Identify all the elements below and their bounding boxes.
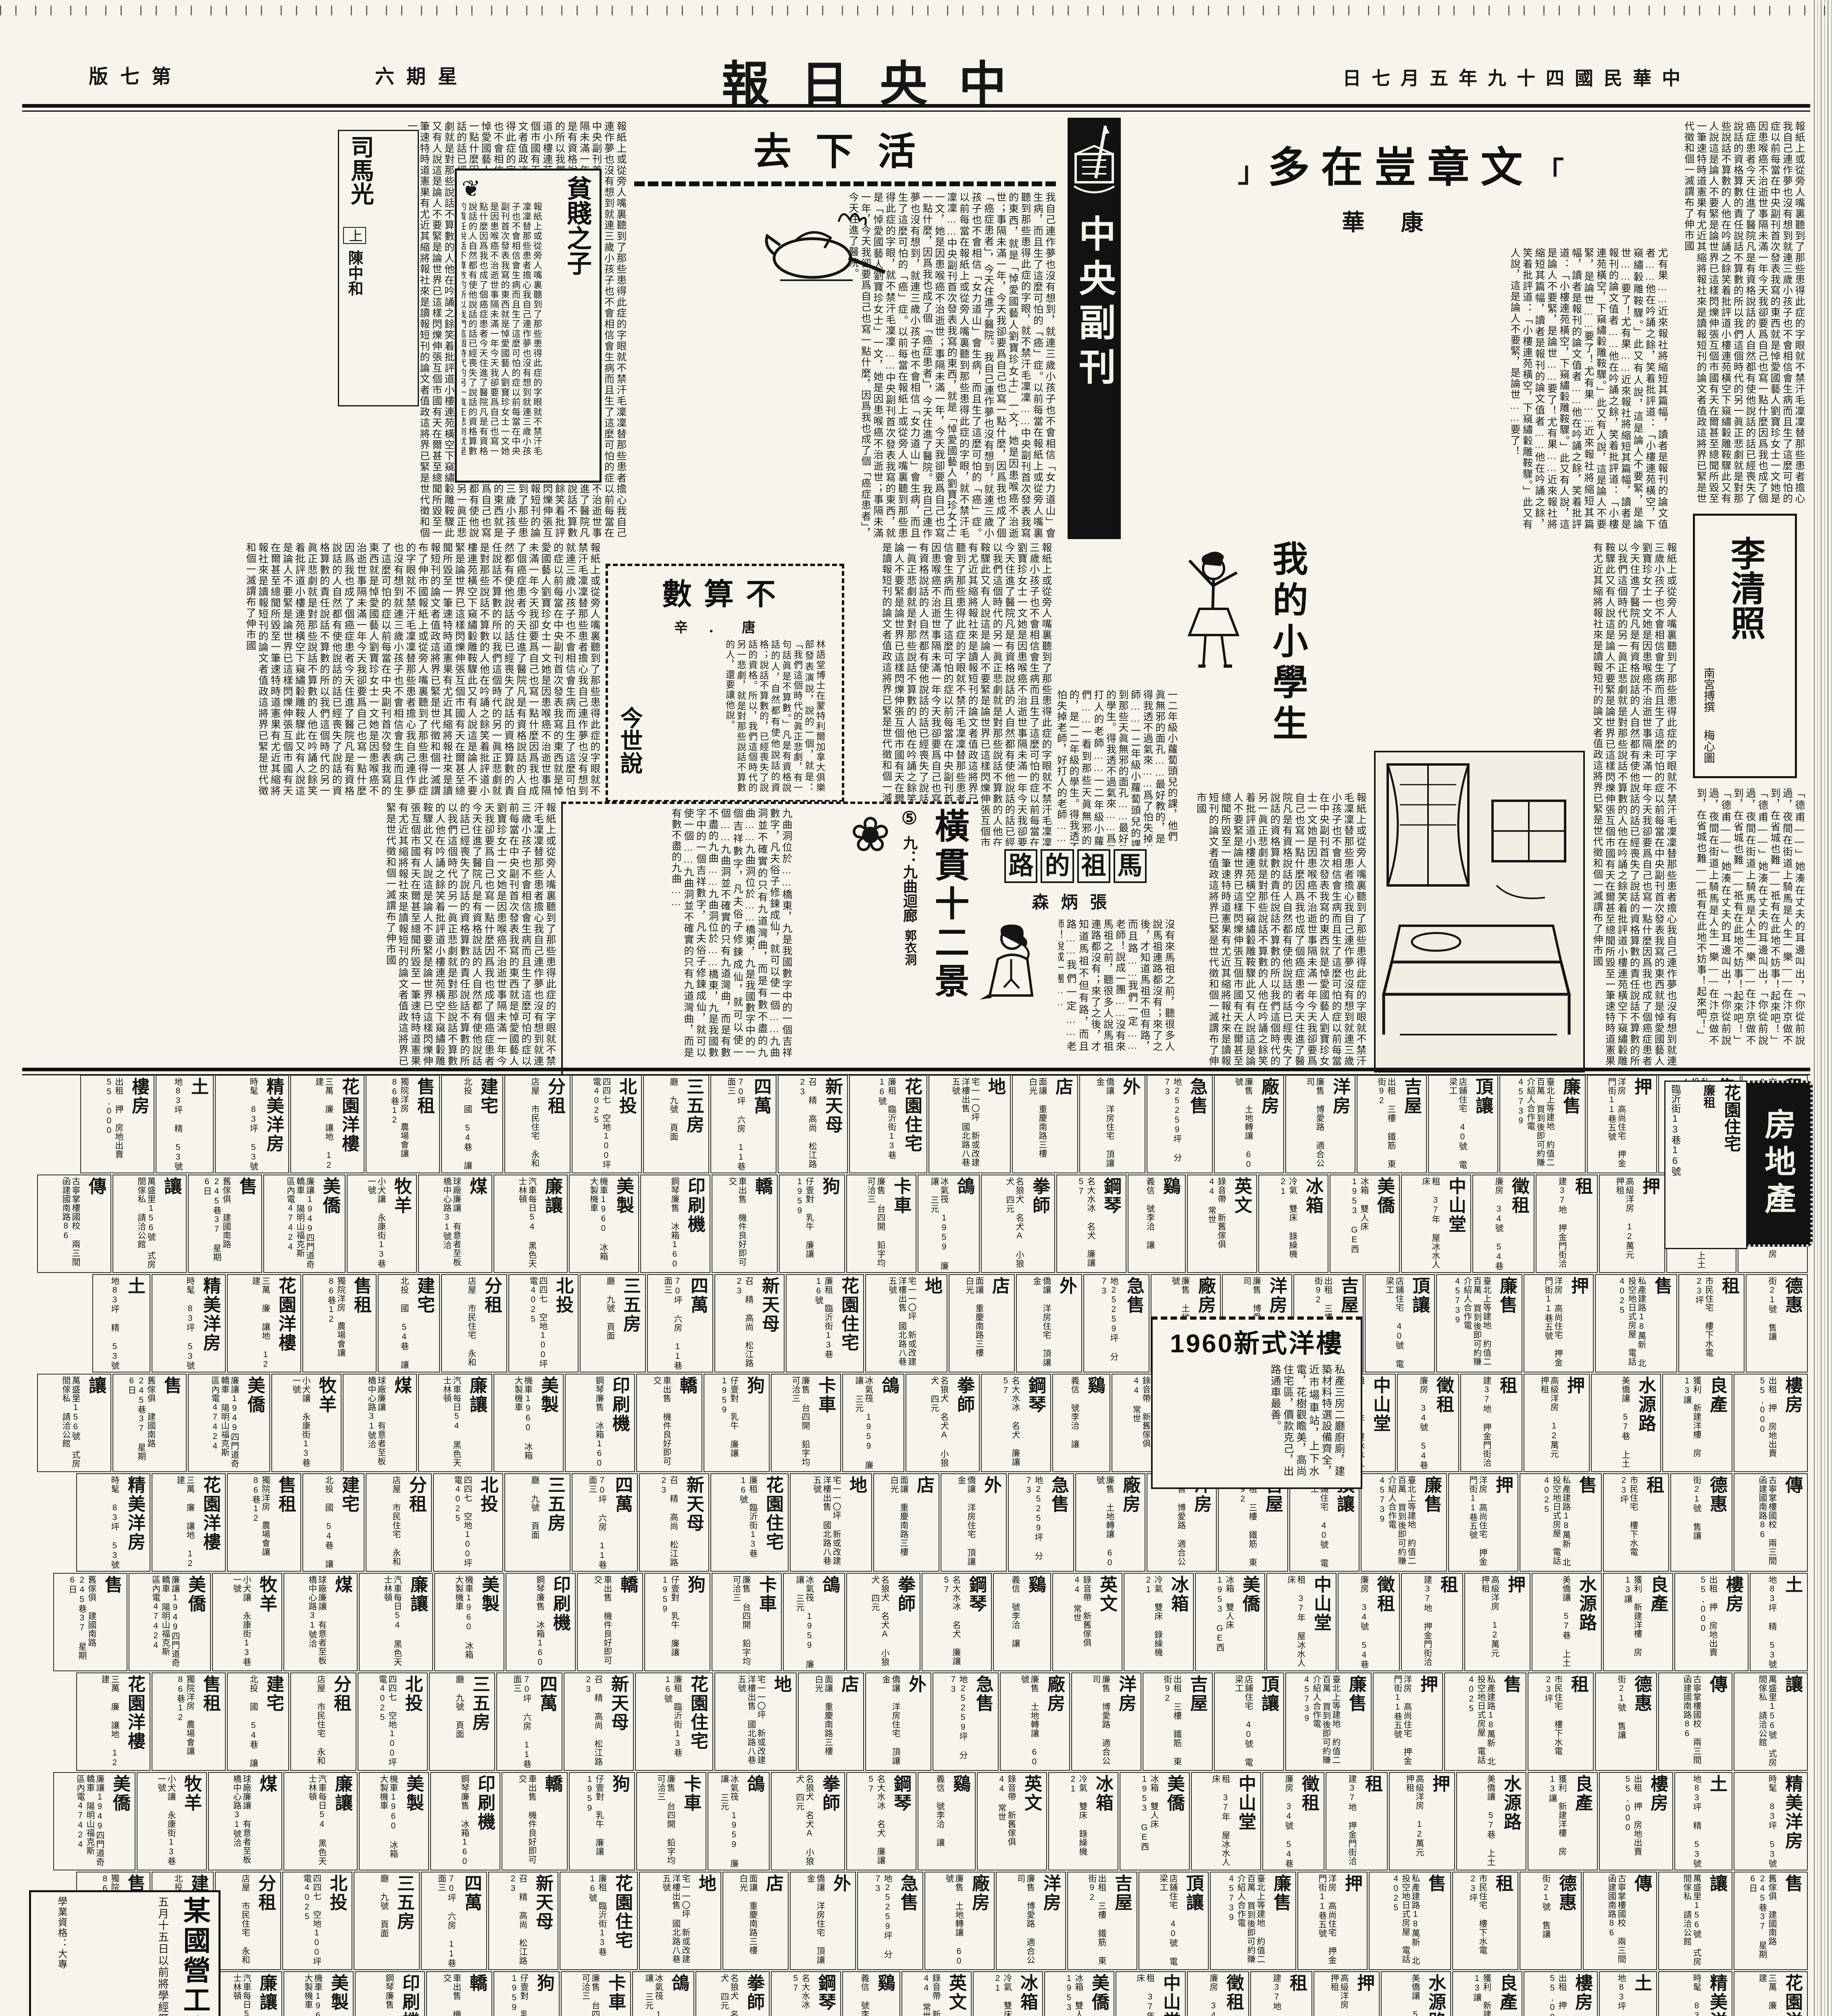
classified-ad-header: 美製 (400, 1774, 426, 1868)
classified-ad-body: 美僑讓 57巷 上土 (1486, 1774, 1495, 1868)
classified-ad-header: 印刷機 (396, 1974, 422, 2016)
classified-ad: 良產獲利 新建洋樓 房13讓 (1662, 1374, 1732, 1472)
classified-ad-body: 錄音帶 新舊傢俱 44 常世 (997, 1774, 1016, 1868)
classified-ad: 地宅一一〇坪 新或改建洋樓出售 國北路八巷五號 (928, 1075, 1011, 1173)
classified-ad: 花園住宅廉租 臨沂街13巷16號 (710, 1473, 789, 1572)
classified-ad: 租市民住宅 樓下水電 23坪 (1528, 1672, 1594, 1771)
liqingzhao-title: 李清照 (1720, 521, 1770, 654)
classified-ad: 廠房廉售 土地轉讓 60號 (924, 1872, 995, 1970)
classified-ad-body: 鋼琴廉售 冰箱160 (670, 1177, 679, 1270)
classified-ad-header: 鷄 (947, 1774, 973, 1868)
classified-ad-body: 機車1960 冰箱 大製機車 (513, 1376, 533, 1470)
classified-ad-header: 美僑 (182, 1575, 208, 1669)
classified-ad-body: 美僑讓 57巷 上土 (1561, 1575, 1571, 1669)
classified-ad-body: 名狼犬 名犬A 小狼犬 四元 (870, 1575, 889, 1669)
classified-ad: 頂讓店鋪住宅 40號 電梁工 (1428, 1075, 1498, 1173)
classified-ad: 外僑讓 洋房住宅 頂讓金 (865, 1672, 931, 1771)
classified-ad-header: 急售 (1045, 1476, 1071, 1569)
classified-ad: 押高級洋房 12萬元 押租 (1599, 1175, 1665, 1273)
classified-ad-body: 店鋪住宅 40號 電梁工 (1158, 1874, 1178, 1968)
classified-recruit-engineer: 某國營工廠招聘化工工程師 五月十五日以前將學經歷函告，合則函約面談。（卅八）新竹… (29, 1890, 221, 2016)
classified-ad: 煤球廠廉讓 有意者至板橋中心路31號洽 (343, 1374, 417, 1472)
classified-ad-body: 廉售 台四開 鉛字均可洽三 (731, 1575, 751, 1669)
classified-ad-header: 廠房 (1117, 1476, 1143, 1569)
classified-ad-body: 廳 九號 頁面 (605, 1277, 615, 1370)
classified-ad-header: 美僑 (241, 1376, 267, 1470)
classified-ad-header: 鴿 (666, 1974, 691, 2016)
classified-ad-header: 卡車 (602, 1974, 628, 2016)
classified-ad-header: 急售 (970, 1675, 996, 1768)
classified-ad: 傳古寧掌樓國校 兩三間函建國南路86 (1734, 1473, 1808, 1572)
classified-ad-header: 新天母 (605, 1675, 631, 1768)
classified-ad-header: 四萬 (534, 1675, 560, 1768)
classified-ad: 美僑冰箱 雙人床 1953 GE西 (1330, 1175, 1400, 1273)
classified-garden-villa: 花園住宅 廉租 臨沂街13巷16號 (1664, 1081, 1747, 1249)
liqingzhao-body: 「德甫——」她湊在丈夫的耳邊叫出，「你從前說過，夜間在街道上騎馬是人生一樂——在… (1684, 788, 1805, 1046)
classified-ad-header: 分租 (403, 1476, 429, 1569)
classified-1960-villa: 1960新式洋樓 私產三房二廳廚廁，建築材料特選設備齊全，近市場車站，上下水電，… (1151, 1316, 1362, 1489)
classified-ad: 印刷機鋼琴廉售 冰箱160 (355, 1971, 425, 2016)
classified-ad: 店面讓 重慶南路三樓 白光 (1012, 1075, 1078, 1173)
classified-ad: 售私產建路18萬新 北投空地日式房屋 電話4025 (1369, 1872, 1451, 1970)
classified-ad: 拳師名狼犬 名犬A 小狼犬 四元 (771, 1772, 845, 1870)
article-text-columns: 報紙上或從旁人嘴裏聽到了那些患得此症的字眼就不禁汗毛凜凜替那些患者擔心我自己連作… (1586, 542, 1677, 1066)
classified-ad: 廉售臺北上等建地 約值二百萬 買到後即可約賺 介紹人合作電45739 (1285, 1672, 1372, 1771)
busuanshu-column-label: 今世說 (614, 706, 646, 795)
classified-ad-body: 地83坪 精 53號 (1616, 1974, 1626, 2016)
classified-ad-header: 讓 (158, 1177, 184, 1270)
classified-ad-header: 鴿 (816, 1575, 842, 1669)
classified-ad-header: 讓 (83, 1376, 108, 1470)
classified-ad-header: 良產 (1569, 1774, 1595, 1868)
classified-ad-body: 古寧掌樓國校 兩三間函建國南路86 (1682, 1675, 1701, 1768)
classified-ad-body: 時髦 83坪 53號 (248, 1077, 258, 1171)
classified-ad: 新天母召 精 高尚 松江路23 (778, 1075, 848, 1173)
scan-ticks-top (0, 6, 1832, 15)
classified-ad-header: 轎 (464, 1974, 489, 2016)
classified-ad-body: 冰箱 雙人床 1953 GE西 (1215, 1575, 1234, 1669)
classified-ad-body: 四四七 空地100坪 電4025 (528, 1277, 548, 1370)
classified-ad-header: 三五房 (681, 1077, 706, 1171)
classified-ad-header: 地 (768, 1675, 794, 1768)
classified-ad-header: 樓房 (1569, 1974, 1595, 2016)
classified-ad-body: 三萬 廉 讓地 12建 (314, 1077, 333, 1171)
quote-open: 「 (1536, 156, 1564, 188)
classified-ad-body: 店鋪住宅 40號 電梁工 (1448, 1077, 1467, 1171)
classified-ad-body: 小犬讓 永康街13巷一號 (366, 1177, 386, 1270)
classified-ad-header: 店 (835, 1675, 861, 1768)
feature-pupils: 我的小學生 一二年級小蘿蔔頭兒的課，他們……一看到那些天眞無邪的面孔……最好教的… (1057, 540, 1313, 792)
classified-ad-header: 良產 (1645, 1575, 1670, 1669)
classified-ad-body: 冷氣 雙床 錄繰機 21 (1278, 1177, 1297, 1270)
classified-ad: 售租獨院洋房 農場會讓 86巷12 (366, 1075, 440, 1173)
classified-ad: 急售地25259坪 分73 (1147, 1075, 1213, 1173)
classified-ad-body: 高級洋房 12萬元 押租 (1615, 1177, 1634, 1270)
classified-ad: 分租店屋 市民住宅 永和 (215, 1872, 281, 1970)
classified-ad-header: 狗 (531, 1974, 557, 2016)
classified-ad-header: 四萬 (685, 1277, 710, 1370)
classified-ad: 轎車出售 機件良好即可交 (502, 1772, 568, 1870)
classified-ad: 轎車出售 機件良好即可交 (426, 1971, 492, 2016)
classified-ad-header: 頂讓 (1406, 1277, 1432, 1370)
classified-ad-header: 吉屋 (1259, 1476, 1285, 1569)
classified-ad-header: 吉屋 (1184, 1675, 1210, 1768)
classified-ad-body: 宅一一〇坪 新或改建洋樓出售 國北路八巷五號 (737, 1675, 766, 1768)
classified-ad-body: 市民住宅 樓下水電 23坪 (1468, 1874, 1487, 1968)
classified-ad-body: 冰氣筏 1959 廉讓 三元 (719, 1774, 739, 1868)
classified-ad-header: 廠房 (1255, 1077, 1281, 1171)
classified-ad-header: 外 (1053, 1277, 1079, 1370)
classified-ad: 德惠街21號 售讓 (1595, 1672, 1657, 1771)
classified-ad-header: 美製 (535, 1376, 561, 1470)
article-text-columns: 報紙上或從旁人嘴裏聽到了那些患得此症的字眼就不禁汗毛凜凜替那些患者擔心我自己連作… (1177, 792, 1367, 1066)
classified-ad: 樓房出租 押 房地出賣 55,000 (1599, 1772, 1673, 1870)
classified-ad: 鷄義信 號李洽 讓 (918, 1772, 976, 1870)
classified-ad: 鋼琴名大水冰 名犬 廉讓 57 (922, 1573, 992, 1671)
classified-ad: 建宅北投 國 54巷 讓 (441, 1075, 503, 1173)
classified-ad: 花園住宅廉租 臨沂街13巷16號 (786, 1274, 864, 1372)
classified-ad-header: 北投 (550, 1277, 576, 1370)
classified-ad-header: 德惠 (1553, 1874, 1579, 1968)
classified-ad-header: 美僑 (1161, 1774, 1187, 1868)
classified-ad-header: 建宅 (260, 1675, 286, 1768)
classified-ad-header: 租 (1569, 1177, 1595, 1270)
classified-ad: 北投四四七 空地100坪 電4025 (358, 1672, 428, 1771)
classified-ad: 美製機車1960 冰箱 大製機車 (569, 1175, 639, 1273)
classified-ad: 鷄義信 號李洽 讓 (993, 1573, 1051, 1671)
classified-ad-header: 美僑 (107, 1774, 133, 1868)
classified-ad-header: 地 (919, 1277, 945, 1370)
classified-ad: 土地83坪 精 53號 (1750, 1573, 1808, 1671)
classified-ad-header: 售 (158, 1376, 184, 1470)
classified-ad-header: 拳師 (892, 1575, 918, 1669)
title-char-box: 馬 (1114, 849, 1147, 883)
huoxiaqu-title: 去下活 (631, 121, 1062, 176)
classified-ad-body: 店屋 市民住宅 永和 (466, 1277, 476, 1370)
classified-ad-header: 洋房 (1188, 1476, 1214, 1569)
classified-ad-body: 私產建路18萬新 北投空地日式房屋 電話4025 (1391, 1874, 1420, 1968)
classified-ad-body: 洋房 高尚住宅 押金門街11巷五號 (1393, 1675, 1412, 1768)
classified-ad-body: 萬盛里156號 式房間傢私 請洽公館 (1682, 1874, 1701, 1968)
classified-ad: 廉售臺北上等建地 約值二百萬 買到後即可約賺 介紹人合作電45739 (1436, 1274, 1522, 1372)
classified-ad-header: 精美洋房 (1704, 1974, 1730, 2016)
classified-ad: 急售地25259坪 分73 (933, 1672, 999, 1771)
classified-ad: 分租店屋 市民住宅 永和 (366, 1473, 432, 1572)
classified-ad-body: 市民住宅 樓下水電 23坪 (1543, 1675, 1563, 1768)
classified-ad-header: 北投 (475, 1476, 500, 1569)
classified-ad-body: 洋房 高尚住宅 押金門街11巷五號 (1543, 1277, 1563, 1370)
classified-ad: 四萬70坪 六房 11巷 面三 (496, 1672, 562, 1771)
classified-ad: 地宅一一〇坪 新或改建洋樓出售 國北路八巷五號 (639, 1872, 721, 1970)
classified-ad: 印刷機鋼琴廉售 冰箱160 (640, 1175, 710, 1273)
classified-ad: 樓房出租 押 房地出賣 55,000 (1734, 1374, 1808, 1472)
classified-ad-header: 英文 (1094, 1575, 1120, 1669)
classified-ad-header: 租 (1716, 1277, 1742, 1370)
classified-ad-body: 北投 國 54巷 讓 (399, 1277, 409, 1370)
classified-ad: 煤球廠廉讓 有意者至板橋中心路31號洽 (283, 1573, 358, 1671)
classified-ad-body: 機車1960 冰箱 大製機車 (589, 1177, 608, 1270)
classified-ad-body: 廉售 博愛路 適合公司 (1305, 1077, 1324, 1171)
classified-ad: 良產獲利 新建洋樓 房13讓 (1528, 1772, 1598, 1870)
classified-ad-header: 美製 (610, 1177, 636, 1270)
classified-ad: 冰箱冷氣 雙床 錄繰機 21 (1124, 1573, 1194, 1671)
classified-ad-body: 宅一一〇坪 新或改建洋樓出售 國北路八巷五號 (951, 1077, 980, 1171)
classified-ad-header: 售 (1498, 1675, 1524, 1768)
classified-ad-header: 中山堂 (1367, 1376, 1393, 1470)
classified-ad-header: 售 (99, 1575, 125, 1669)
classified-ad: 良產獲利 新建洋樓 房13讓 (1452, 1971, 1522, 2016)
classified-ad-body: 小犬讓 永康街13巷一號 (232, 1575, 251, 1669)
classified-ad-body: 店屋 市民住宅 永和 (240, 1874, 250, 1968)
classified-ad: 鴿冰氣筏 1959 廉讓 三元 (918, 1175, 980, 1273)
classified-ad-body: 冰箱 雙人床 1953 GE西 (1139, 1774, 1159, 1868)
classified-ad-body: 廉讓1949四門道奇轎車 陽明山福克斯 區內電47424 (151, 1575, 180, 1669)
classified-ad: 英文錄音帶 新舊傢俱 44 常世 (1052, 1573, 1122, 1671)
classified-ad-header: 英文 (943, 1974, 969, 2016)
classified-ad-body: 廉讓1949四門道奇轎車 陽明山福克斯 區內電47424 (75, 1774, 104, 1868)
classified-ad-header: 頂讓 (1255, 1675, 1281, 1768)
classified-ad-body: 義信 號李洽 讓 (1070, 1376, 1079, 1470)
real-estate-section-label: 房地產 (1755, 1108, 1801, 1219)
title-char-box: 祖 (1077, 849, 1110, 883)
classified-ad-body: 汽車每日54 黑色天士林頓 (307, 1774, 327, 1868)
classified-ad-header: 吉屋 (1398, 1077, 1424, 1171)
classified-ad: 中山堂租 37年 屋冰水人床 (1401, 1175, 1471, 1273)
classified-ad-header: 牧羊 (313, 1376, 339, 1470)
classified-ad: 外僑讓 洋房住宅 頂讓金 (1079, 1075, 1145, 1173)
classified-ad: 廉售臺北上等建地 約值二百萬 買到後即可約賺 介紹人合作電45739 (1499, 1075, 1586, 1173)
classified-ad: 讓萬盛里156號 式房間傢私 請洽公館 (1734, 1672, 1808, 1771)
classified-ad-header: 押 (1565, 1277, 1591, 1370)
classified-ad: 拳師名狼犬 名犬A 小狼犬 四元 (906, 1374, 980, 1472)
classified-ad: 鴿冰氣筏 1959 廉讓 三元 (632, 1971, 694, 2016)
classified-ad-header: 徵租 (1220, 1974, 1246, 2016)
classified-ad-header: 租 (1359, 1774, 1385, 1868)
garden-villa-terms: 廉租 (1699, 1084, 1717, 1133)
classified-ad: 外僑讓 洋房住宅 頂讓金 (790, 1872, 856, 1970)
wenzhang-title: 多在豈章文 (1268, 144, 1534, 191)
classified-ad-body: 出租 押 房地出賣 55,000 (1623, 1774, 1642, 1868)
classified-ad-body: 廉售 博愛路 適合公司 (1091, 1675, 1110, 1768)
classified-ad: 頂讓店鋪住宅 40號 電梁工 (1365, 1274, 1435, 1372)
classified-ad: 鴿冰氣筏 1959 廉讓 三元 (783, 1573, 845, 1671)
classified-ad-body: 廉售 博愛路 適合公司 (1016, 1874, 1035, 1968)
mazu-title: 馬祖的路 (976, 849, 1175, 883)
feature-pinjianzhizi: ❦ 貧賤之子 報紙上或從旁人嘴裏聽到了那些患得此症的字眼就不禁汗毛凜凜替那些患者… (455, 169, 602, 483)
serial-simaguang-author: 陳中和 (343, 250, 365, 314)
classified-ad-header: 轎 (539, 1774, 565, 1868)
classified-ad: 土地83坪 精 53號 (1599, 1971, 1657, 2016)
classified-ad: 鴿冰氣筏 1959 廉讓 三元 (842, 1374, 904, 1472)
classified-ad-body: 出租 三樓 鐵筋 東街92 (1162, 1675, 1182, 1768)
classified-ad-header: 水源路 (1632, 1376, 1658, 1470)
date-line: 日七月五年九十四國民華中 (1343, 64, 1691, 90)
classified-ad: 鴿冰氣筏 1959 廉讓 三元 (708, 1772, 770, 1870)
classified-ad: 花園洋樓三萬 廉 讓地 12建 (1734, 1971, 1808, 2016)
classified-ad-header: 花園住宅 (760, 1476, 786, 1569)
classified-ad-header: 精美洋房 (260, 1077, 286, 1171)
classified-ad-header: 店 (760, 1874, 786, 1968)
classified-ad-body: 宅一一〇坪 新或改建洋樓出售 國北路八巷五號 (661, 1874, 690, 1968)
classified-ad-header: 煤 (329, 1575, 355, 1669)
classified-ad-header: 頂讓 (1180, 1874, 1206, 1968)
classified-ad-header: 土 (1628, 1974, 1654, 2016)
fukan-banner-title: 中央副刊 (1068, 215, 1121, 392)
classified-ad: 牧羊小犬讓 永康街13巷一號 (137, 1772, 207, 1870)
classified-ad-header: 美製 (476, 1575, 502, 1669)
classified-ad-body: 冷氣 雙床 錄繰機 21 (1068, 1774, 1087, 1868)
classified-ad-body: 冰箱 雙人床 1953 GE西 (1064, 1974, 1083, 2016)
classified-ad: 急售地25259坪 分73 (857, 1872, 923, 1970)
classified-ad-header: 傳 (83, 1177, 108, 1270)
fukan-banner: 中央副刊 (1068, 118, 1121, 539)
classified-ad: 地宅一一〇坪 新或改建洋樓出售 國北路八巷五號 (714, 1672, 797, 1771)
mazu-body: 沒有來馬祖之前，聽很多人說馬祖連路都沒有；來了之後，才知道馬祖不但有路，而且路…… (1058, 919, 1175, 1052)
classified-ad-body: 地83坪 精 53號 (1767, 1575, 1777, 1669)
classified-ad-body: 舊傢俱 建國南路245巷37 星期6日 (127, 1376, 156, 1470)
classified-ad-body: 廉房 34號 54巷 (1418, 1376, 1428, 1470)
classified-ad-header: 押 (1636, 1177, 1662, 1270)
classified-ad: 租市民住宅 樓下水電 23坪 (1678, 1274, 1745, 1372)
classified-ad-header: 徵租 (1430, 1376, 1456, 1470)
classified-ad-body: 廉租 臨沂街13巷16號 (587, 1874, 607, 1968)
classified-ad: 徵租廉房 34號 54巷 (1338, 1573, 1400, 1671)
classified-ad-body: 汽車每日54 黑色天士林頓 (442, 1376, 461, 1470)
classified-ad-body: 廉租 臨沂街13巷16號 (814, 1277, 833, 1370)
classified-ad: 押洋房 高尚住宅 押金門街11巷五號 (1587, 1075, 1657, 1173)
classified-ad: 冰箱冷氣 雙床 錄繰機 21 (1048, 1772, 1118, 1870)
classified-ad: 德惠街21號 售讓 (1520, 1872, 1582, 1970)
classified-ad-body: 名大水冰 名犬 廉讓 57 (941, 1575, 961, 1669)
classified-ad-body: 召 精 高尚 松江路23 (659, 1476, 678, 1569)
classified-ad: 售舊傢俱 建國南路245巷37 星期6日 (188, 1175, 262, 1273)
classified-ad-body: 廉讓1949四門道奇轎車 陽明山福克斯 區內電47424 (210, 1376, 239, 1470)
classified-ad-body: 出租 三樓 鐵筋 東街92 (1087, 1874, 1106, 1968)
classified-ad-header: 售租 (348, 1277, 374, 1370)
classified-ad-header: 鴿 (951, 1177, 977, 1270)
feature-busuanshu: 數算不 辛．唐 今世說 林語堂博士在蒙特利爾加拿大俱樂部發表演說，說的一個，就是… (606, 564, 844, 802)
classified-ad-header: 花園住宅 (899, 1077, 924, 1171)
woman-illustration (976, 919, 1044, 1004)
classified-ad-body: 車出售 機件良好即可交 (593, 1575, 612, 1669)
classified-ad-body: 召 精 高尚 松江路23 (583, 1675, 603, 1768)
classified-ad-body: 仔壹對 乳牛 廉讓 1959 (795, 1177, 814, 1270)
classified-ad-body: 地83坪 精 53號 (1692, 1774, 1701, 1868)
classified-ad-header: 外 (1117, 1077, 1143, 1171)
classified-ad: 徵租廉房 34號 54巷 (1397, 1374, 1459, 1472)
classified-ad-header: 急售 (1121, 1277, 1147, 1370)
article-text-columns: 報紙上或從旁人嘴裏聽到了那些患得此症的字眼就不禁汗毛凜凜替那些患者擔心我自己連作… (24, 542, 601, 796)
classified-ad-header: 售 (1573, 1476, 1599, 1569)
classified-ad: 花園洋樓三萬 廉 讓地 12建 (152, 1473, 226, 1572)
classified-ad: 精美洋房時髦 83坪 53號 (1734, 1772, 1808, 1870)
classified-ad-body: 舊傢俱 建國南路245巷37 星期6日 (1748, 1874, 1777, 1968)
classified-ad-header: 鷄 (1082, 1376, 1108, 1470)
classified-ad-header: 租 (1565, 1675, 1591, 1768)
classified-ad: 廠房廉售 土地轉讓 60號 (1000, 1672, 1070, 1771)
classified-ad-body: 洋房 高尚住宅 押金門街11巷五號 (1607, 1077, 1626, 1171)
classified-ad: 分租店屋 市民住宅 永和 (290, 1672, 356, 1771)
classified-ad-body: 店屋 市民住宅 永和 (530, 1077, 539, 1171)
classified-ad-body: 廉房 34號 54巷 (1494, 1177, 1503, 1270)
classified-ad-header: 轎 (614, 1575, 640, 1669)
classified-ad: 花園住宅廉租 臨沂街13巷16號 (560, 1872, 638, 1970)
teapot-illustration (756, 198, 889, 286)
classified-ad-body: 獨院洋房 農場會讓 86巷12 (326, 1277, 346, 1370)
classified-ad: 水源路美僑讓 57巷 上土 (1381, 1971, 1451, 2016)
classified-ad: 牧羊小犬讓 永康街13巷一號 (212, 1573, 282, 1671)
section-divider-rule (22, 1068, 1810, 1075)
classified-ad-header: 店 (986, 1277, 1012, 1370)
classified-ad: 租建37地 押金門街洽 (1536, 1175, 1598, 1273)
classified-ad-header: 建宅 (475, 1077, 500, 1171)
classified-ad: 轎車出售 機件良好即可交 (712, 1175, 778, 1273)
classified-ad-body: 三萬 廉 讓地 12建 (175, 1476, 195, 1569)
classified-ad: 售租獨院洋房 農場會讓 86巷12 (227, 1473, 301, 1572)
classified-ad-header: 土 (122, 1277, 148, 1370)
classified-ad-body: 獲利 新建洋樓 房13讓 (1682, 1376, 1701, 1470)
classified-ad-body: 市民住宅 樓下水電 23坪 (1694, 1277, 1713, 1370)
classified-ad-body: 街21號 售讓 (1616, 1675, 1626, 1768)
classified-ad-body: 舊傢俱 建國南路245巷37 星期6日 (202, 1177, 231, 1270)
classified-ad: 土地83坪 精 53號 (92, 1274, 150, 1372)
classified-ad-body: 面讓 重慶南路三樓 白光 (814, 1675, 833, 1768)
classified-ad: 美製機車1960 冰箱 大製機車 (493, 1374, 564, 1472)
classified-ad: 英文錄音帶 新舊傢俱 44 常世 (901, 1971, 972, 2016)
pupils-title: 我的小學生 (1262, 540, 1313, 782)
classified-ad-header: 印刷機 (682, 1177, 708, 1270)
classified-ad-header: 狗 (606, 1774, 632, 1868)
classified-ad-body: 出租 押 房地出賣 55,000 (1698, 1575, 1717, 1669)
classified-ad-body: 臺北上等建地 約值二百萬 買到後即可約賺 介紹人合作電45739 (1226, 1874, 1265, 1968)
classified-ad-header: 卡車 (812, 1376, 838, 1470)
classified-ad: 押洋房 高尚住宅 押金門街11巷五號 (1524, 1274, 1594, 1372)
classified-ad-body: 出租 三樓 鐵筋 東街92 (1238, 1476, 1257, 1569)
classified-ad: 地宅一一〇坪 新或改建洋樓出售 國北路八巷五號 (865, 1274, 947, 1372)
classified-ad: 押洋房 高尚住宅 押金門街11巷五號 (1373, 1672, 1443, 1771)
classified-ad: 傳古寧掌樓國校 兩三間函建國南路86 (1658, 1672, 1732, 1771)
classified-ad-header: 德惠 (1704, 1476, 1730, 1569)
header-rule (22, 104, 1810, 112)
classified-ad-header: 廉讓 (539, 1177, 565, 1270)
classified-ad-body: 錄音帶 新舊傢俱 44 常世 (1207, 1177, 1226, 1270)
classified-ad-body: 廉讓1949四門道奇轎車 陽明山福克斯 區內電47424 (285, 1177, 314, 1270)
classified-ad: 租市民住宅 樓下水電 23坪 (1603, 1473, 1669, 1572)
classified-ad-header: 鴿 (741, 1774, 767, 1868)
recruit-note: 學業資格：大專 (35, 1896, 67, 2016)
classified-ad-body: 廉售 博愛路 適合公司 (1166, 1476, 1186, 1569)
classified-ad-header: 地 (693, 1874, 718, 1968)
classified-ad-body: 獲利 新建洋樓 房13讓 (1623, 1575, 1642, 1669)
classified-ad-header: 狗 (682, 1575, 708, 1669)
classified-ad-header: 美僑 (317, 1177, 343, 1270)
classified-ad-body: 出租 押 房地出賣 55,000 (104, 1077, 123, 1171)
liqingzhao-credit-author: 南宮搏撰 (1701, 658, 1717, 722)
classified-ad: 店面讓 重慶南路三樓 白光 (949, 1274, 1015, 1372)
serial-simaguang-part: 上 (343, 227, 366, 244)
classified-ad-header: 廉售 (1557, 1077, 1583, 1171)
classified-ad-body: 廉房 34號 54巷 (1359, 1575, 1369, 1669)
classified-ad-body: 建37地 押金門街洽 (1422, 1575, 1432, 1669)
classified-ad-header: 三五房 (617, 1277, 643, 1370)
garden-villa-title: 花園住宅 (1719, 1084, 1744, 1237)
classified-ad-header: 印刷機 (606, 1376, 632, 1470)
classified-ad-body: 店鋪住宅 40號 電梁工 (1309, 1476, 1328, 1569)
classified-ad-body: 名狼犬 名犬A 小狼犬 四元 (1005, 1177, 1024, 1270)
classified-ad-body: 街21號 售讓 (1767, 1277, 1777, 1370)
classified-ad-body: 私產建路18萬新 北投空地日式房屋 電話4025 (1466, 1675, 1495, 1768)
classified-ad-body: 獲利 新建洋樓 房13讓 (1547, 1774, 1567, 1868)
